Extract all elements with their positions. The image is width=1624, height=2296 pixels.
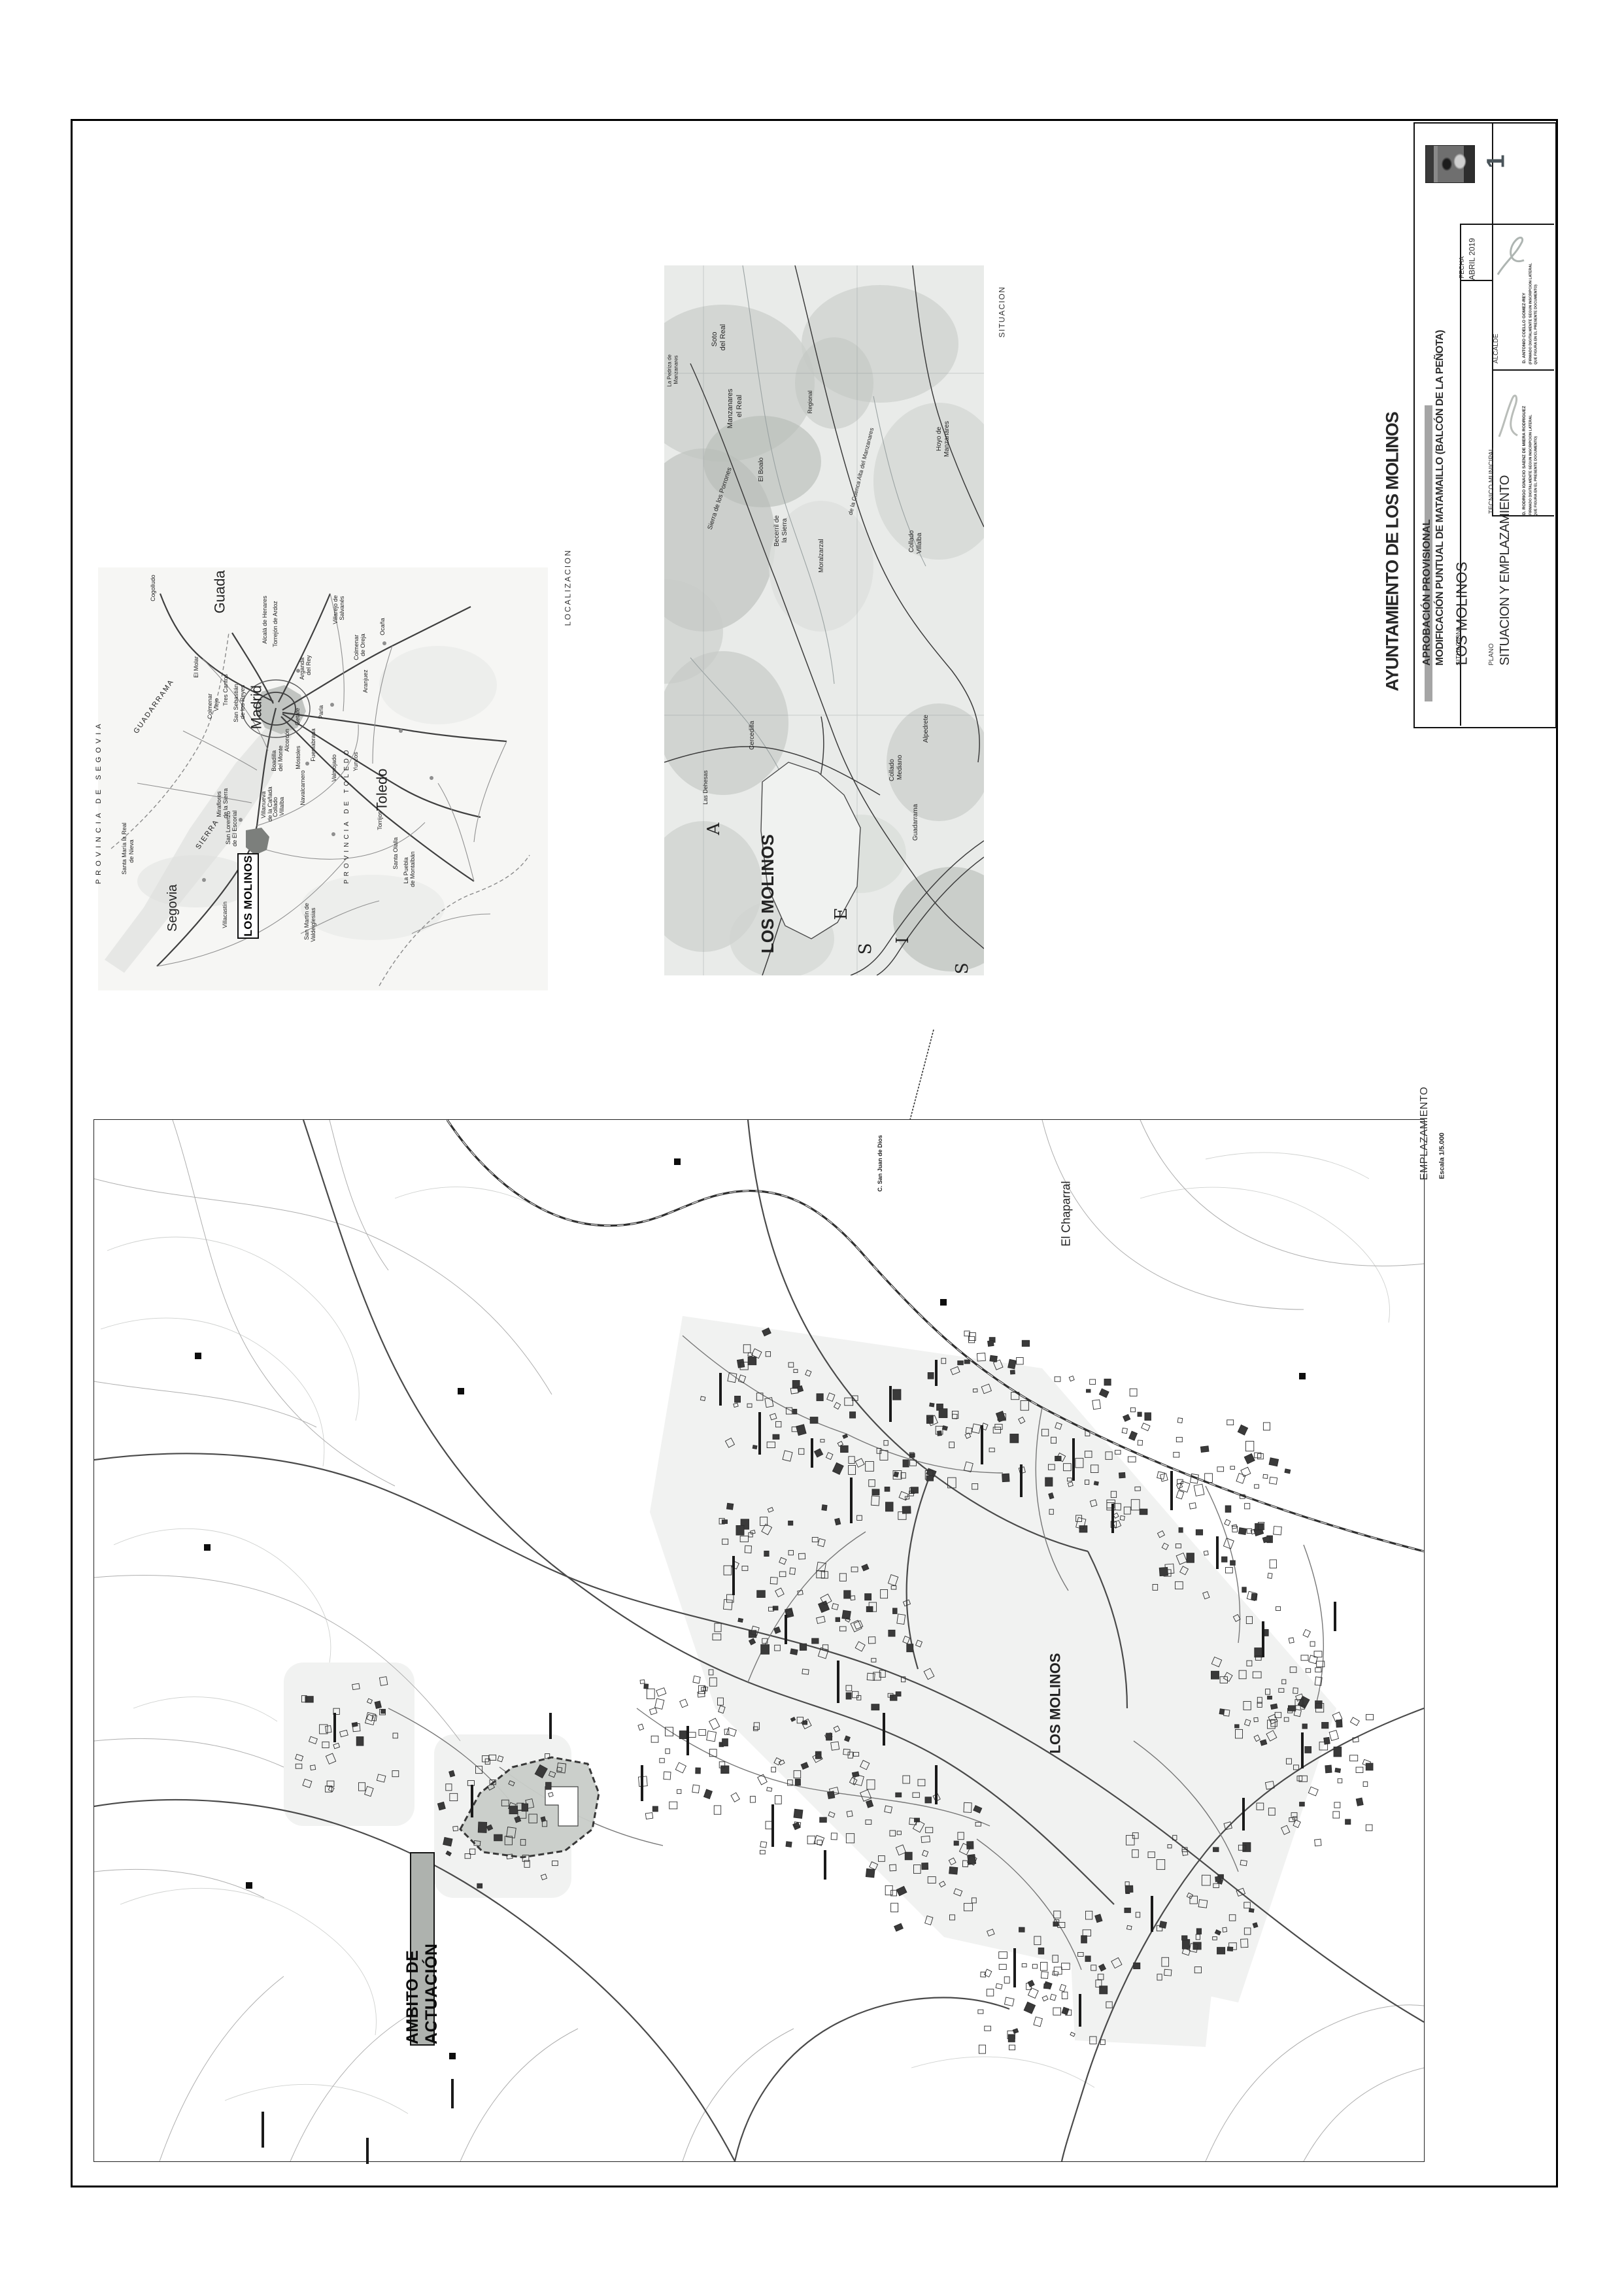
emplazamiento-map-graphic [94,1120,1424,2161]
ambito-de-actuacion-label: AMBITO DE ACTUACIÓN [403,1853,441,2044]
plano-field-value: SITUACION Y EMPLAZAMIENTO [1497,475,1513,666]
urban-underlay [284,1316,1336,2047]
emplazamiento-map [93,1119,1425,2162]
alcalde-field-label: ALCALDE [1493,333,1500,363]
title-block-divider [1492,369,1554,371]
title-block-divider [1460,224,1554,225]
alcalde-signature [1493,229,1529,288]
organization-title: AYUNTAMIENTO DE LOS MOLINOS [1382,412,1403,691]
alcalde-signature-note-2: QUE FIGURA EN EL PRESENTE DOCUMENTO) [1534,284,1538,364]
tecnico-signature [1493,384,1525,447]
emplazamiento-section-label: EMPLAZAMIENTO [1418,1087,1430,1180]
ambito-de-actuacion-box: AMBITO DE ACTUACIÓN [410,1852,435,2046]
localization-map-graphic [98,567,548,990]
approval-line1: APROBACIÓN PROVISIONAL [1421,519,1433,666]
alcalde-signature-note-1: (FIRMADO DIGITALMENTE SEGUN INSCRIPCION … [1529,263,1533,364]
localization-map [98,567,548,990]
situation-map [664,265,984,975]
plan-sheet-page: LOS MOLINOS PROVINCIA DE SEGOVIASegoviaS… [0,0,1624,2296]
los-molinos-highlight-label: LOS MOLINOS [242,855,255,937]
tecnico-signature-note-2: QUE FIGURA EN EL PRESENTE DOCUMENTO) [1534,436,1538,516]
tecnico-field-label: TECNICO MUNICIPAL [1488,448,1496,515]
approval-line2: MODIFICACIÓN PUNTUAL DE MATAMAILLO (BALC… [1434,330,1446,666]
sheet-number: 1 [1481,154,1512,168]
alcalde-name: D. ANTONIO COELLO GOMEZ-REY [1522,293,1527,363]
situacion-section-label: SITUACION [998,286,1007,338]
fecha-field-value: ABRIL 2019 [1468,238,1477,280]
situacion-field-value: LOS MOLINOS [1453,562,1471,665]
localizacion-section-label: LOCALIZACION [564,549,573,626]
fecha-field-label: FECHA [1459,256,1466,279]
los-molinos-highlight-box: LOS MOLINOS [237,853,259,939]
tecnico-signature-note-1: (FIRMADO DIGITALMENTE SEGUN INSCRIPCION … [1529,414,1533,516]
plano-field-label: PLANO [1488,643,1496,666]
situation-map-graphic [664,265,984,975]
municipal-stamp-image [1425,145,1475,183]
emplazamiento-scale-label: Escala 1/5.000 [1438,1132,1446,1179]
terrain-blob [379,646,497,724]
